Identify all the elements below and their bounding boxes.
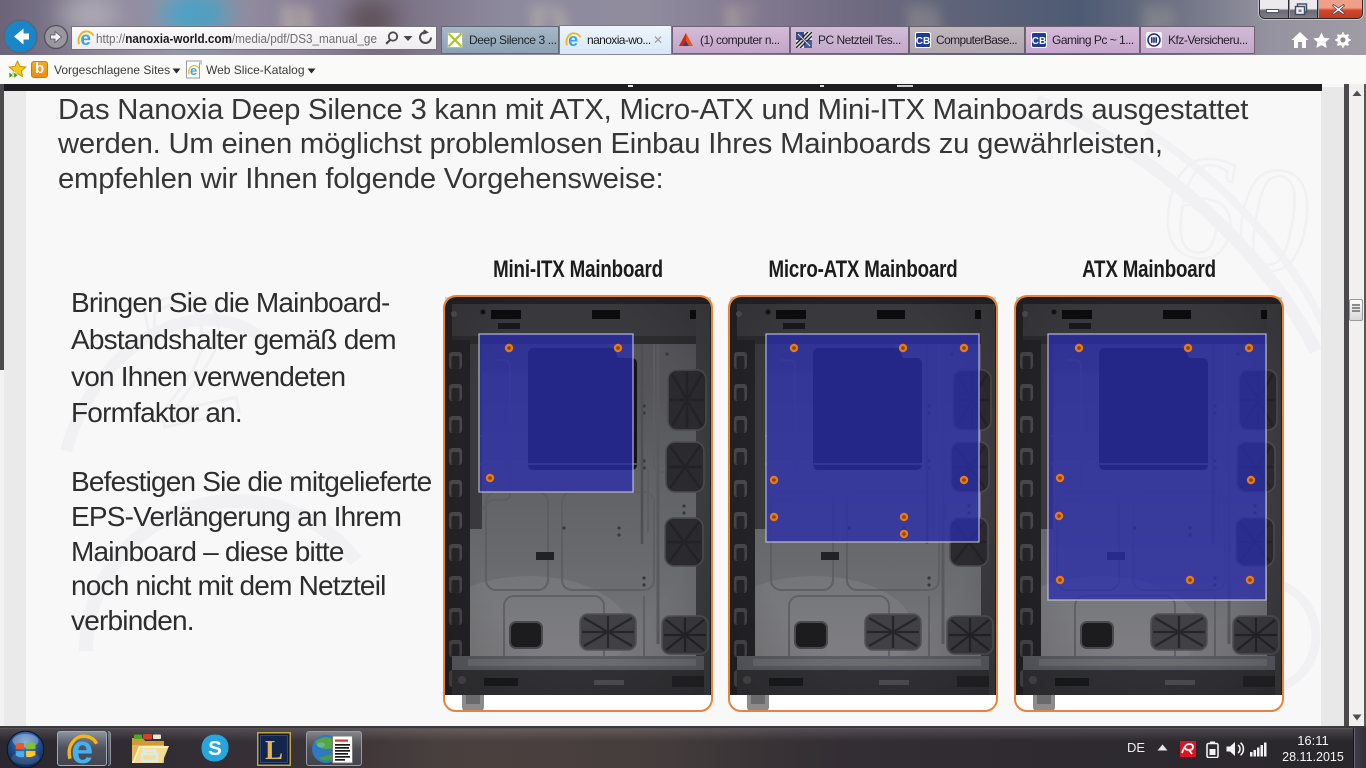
svg-text:S: S — [208, 737, 222, 760]
svg-text:CB: CB — [1032, 36, 1046, 47]
svg-text:CB: CB — [916, 36, 930, 47]
svg-text:L: L — [265, 735, 283, 765]
